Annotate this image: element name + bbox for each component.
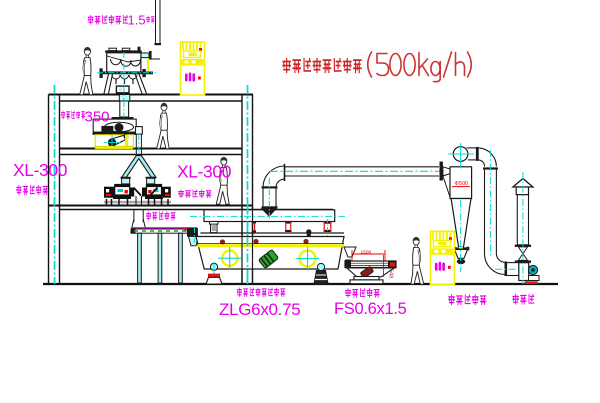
svg-text:XL-300: XL-300 (13, 160, 68, 180)
svg-text:FS0.6x1.5: FS0.6x1.5 (334, 300, 407, 318)
svg-text:1500: 1500 (361, 250, 372, 256)
svg-text:ZLG6x0.75: ZLG6x0.75 (219, 300, 300, 319)
svg-text:XL-300: XL-300 (177, 162, 232, 182)
svg-text:Φ500: Φ500 (455, 181, 469, 187)
svg-text:1.5: 1.5 (128, 13, 146, 28)
svg-text:548: 548 (388, 269, 394, 278)
svg-text:350: 350 (85, 109, 110, 126)
